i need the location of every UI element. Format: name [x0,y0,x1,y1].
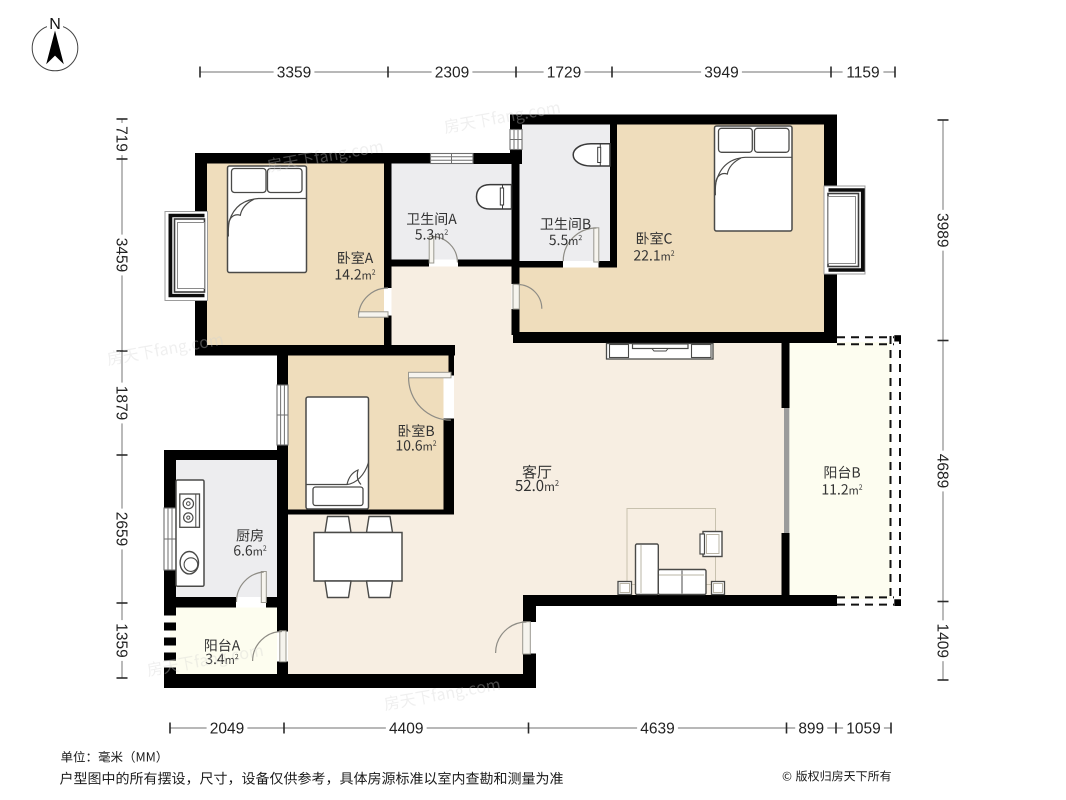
svg-text:2659: 2659 [113,512,130,546]
svg-text:1059: 1059 [846,720,880,737]
svg-text:3359: 3359 [277,64,311,81]
svg-text:719: 719 [113,126,130,152]
svg-text:3459: 3459 [113,238,130,272]
svg-text:1729: 1729 [547,64,581,81]
svg-text:3989: 3989 [934,213,951,247]
svg-text:899: 899 [798,720,824,737]
svg-text:4409: 4409 [389,720,423,737]
svg-text:4639: 4639 [640,720,674,737]
svg-text:N: N [49,16,61,33]
svg-text:2309: 2309 [435,64,469,81]
svg-text:1879: 1879 [113,386,130,420]
svg-text:1159: 1159 [846,64,879,81]
svg-text:4689: 4689 [934,454,951,488]
svg-text:1359: 1359 [113,623,130,657]
svg-text:2049: 2049 [210,720,244,737]
svg-text:3949: 3949 [704,64,738,81]
svg-text:1409: 1409 [934,624,951,658]
